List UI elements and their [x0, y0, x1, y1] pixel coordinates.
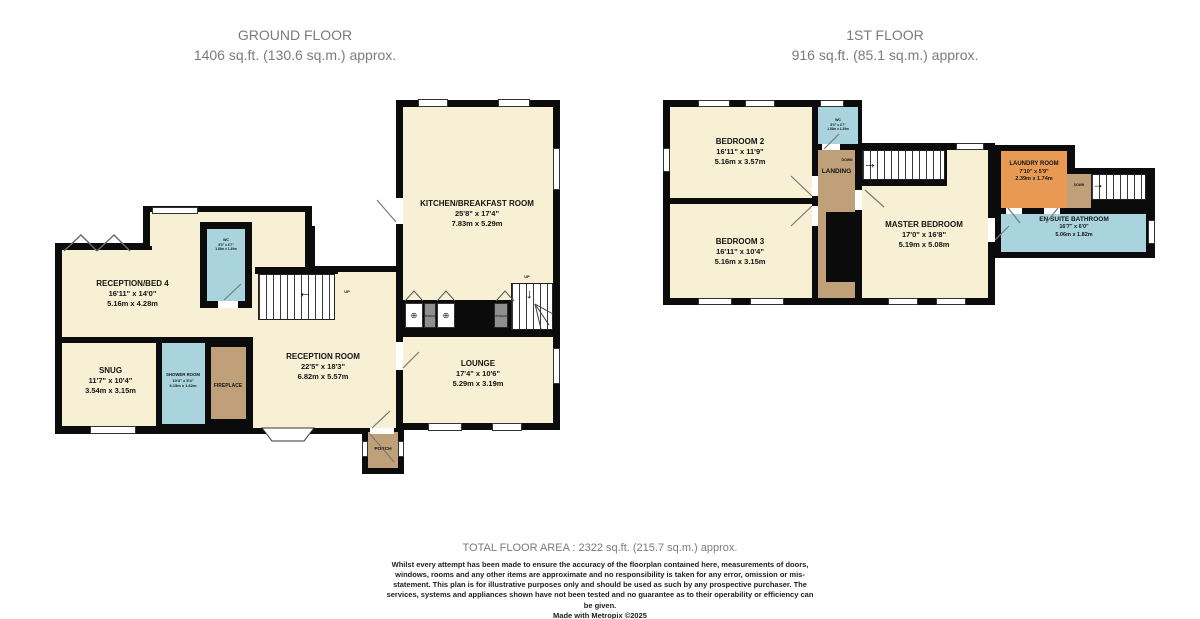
disclaimer-block: Whilst every attempt has been made to en…: [383, 560, 817, 619]
disclaimer-text: Whilst every attempt has been made to en…: [383, 560, 817, 611]
cabinet-peaks: [405, 291, 514, 301]
door-swings: [224, 134, 1058, 462]
credit-text: Made with Metropix ©2025: [383, 611, 817, 619]
floorplan-canvas: GROUND FLOOR 1406 sq.ft. (130.6 sq.m.) a…: [0, 0, 1200, 619]
bow-window: [262, 428, 314, 441]
total-floor-area: TOTAL FLOOR AREA : 2322 sq.ft. (215.7 sq…: [300, 542, 900, 554]
plan-line-overlay: [0, 0, 1200, 619]
bay-window-zigzag: [64, 235, 130, 251]
winder-fan: [535, 304, 553, 329]
